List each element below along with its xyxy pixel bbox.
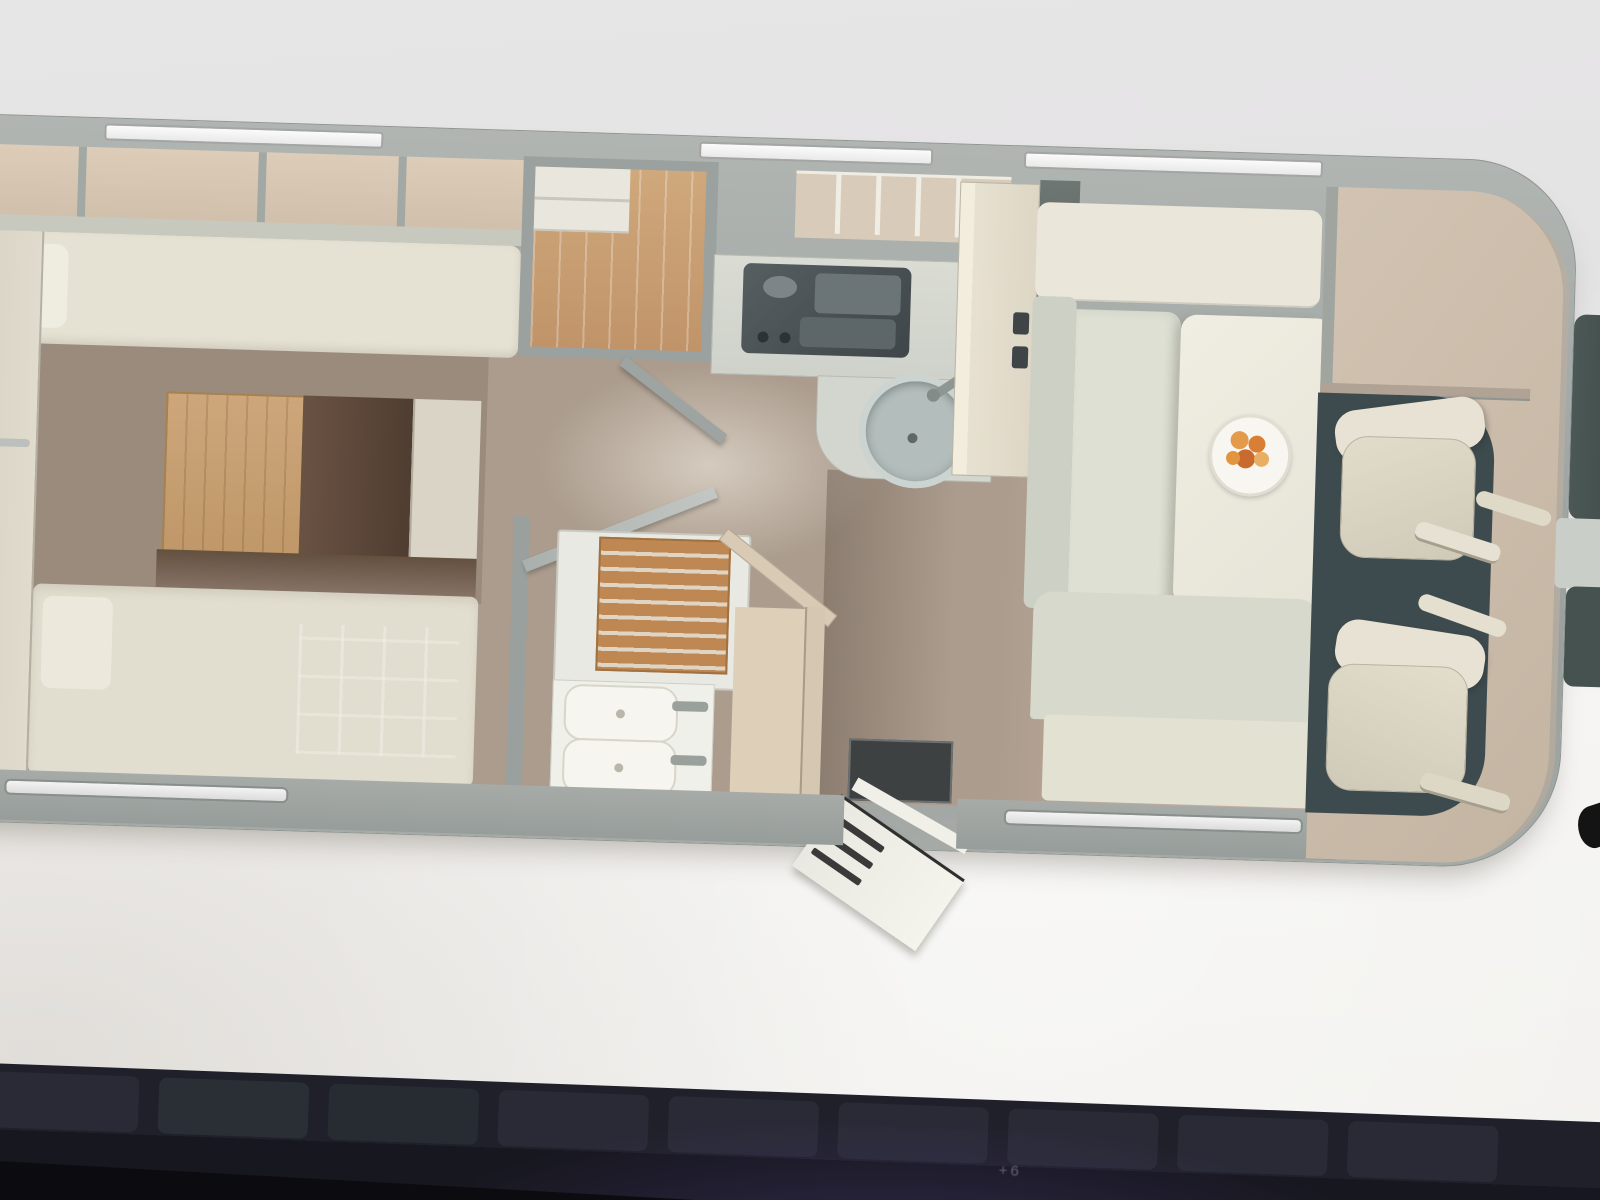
shower-teak-grate [595,537,731,675]
bed-divider-panel [409,399,482,561]
exterior-step-panel [1568,314,1600,521]
fruit-icon [1230,431,1249,450]
exterior-step-panel [1563,586,1600,688]
fruit-plate [1208,413,1292,497]
floorplan [0,112,1600,904]
cooktop-knob [779,332,790,343]
sink-drain [907,433,917,443]
dinette-window-bench [1035,202,1323,309]
bed-quilt [296,624,460,759]
rear-bench-back [1030,591,1319,728]
basin-faucet-icon [670,755,706,766]
stage: +6 [0,0,1600,1200]
walnut-step [299,396,414,559]
cab-seat-rear [1314,603,1530,821]
pillow-icon [40,596,113,690]
cooktop-knob [757,331,768,342]
cabinet-handle [1012,346,1029,368]
cooktop-grate [814,273,901,316]
keyboard-key [158,1077,310,1138]
towel-bar-icon [0,438,30,447]
tall-fridge-cabinet [951,181,1040,477]
single-bed-top [0,230,521,358]
oak-step-chest [162,391,306,559]
rear-bench-seat [1041,714,1333,809]
exterior-bracket [1554,518,1600,590]
cab-seat-front [1324,401,1539,587]
dinette-bench-seat [1068,309,1182,607]
keyboard-key [0,1071,140,1132]
cooktop-grate [799,317,896,350]
pan-icon [763,276,798,299]
seat-cushion [1325,663,1469,794]
washbasin-1 [563,684,679,743]
fruit-icon [1254,452,1269,467]
basin-faucet-icon [672,701,708,712]
cooktop [741,263,912,358]
basin-drain [616,709,625,718]
bathroom-inner-face [730,607,806,797]
seat-armrest [1418,771,1512,815]
keyboard-key [327,1084,479,1145]
dining-table [1172,314,1333,611]
basin-drain [614,763,623,772]
cabinet-handle [1013,312,1030,334]
keyboard-key-label: +6 [998,1162,1022,1180]
